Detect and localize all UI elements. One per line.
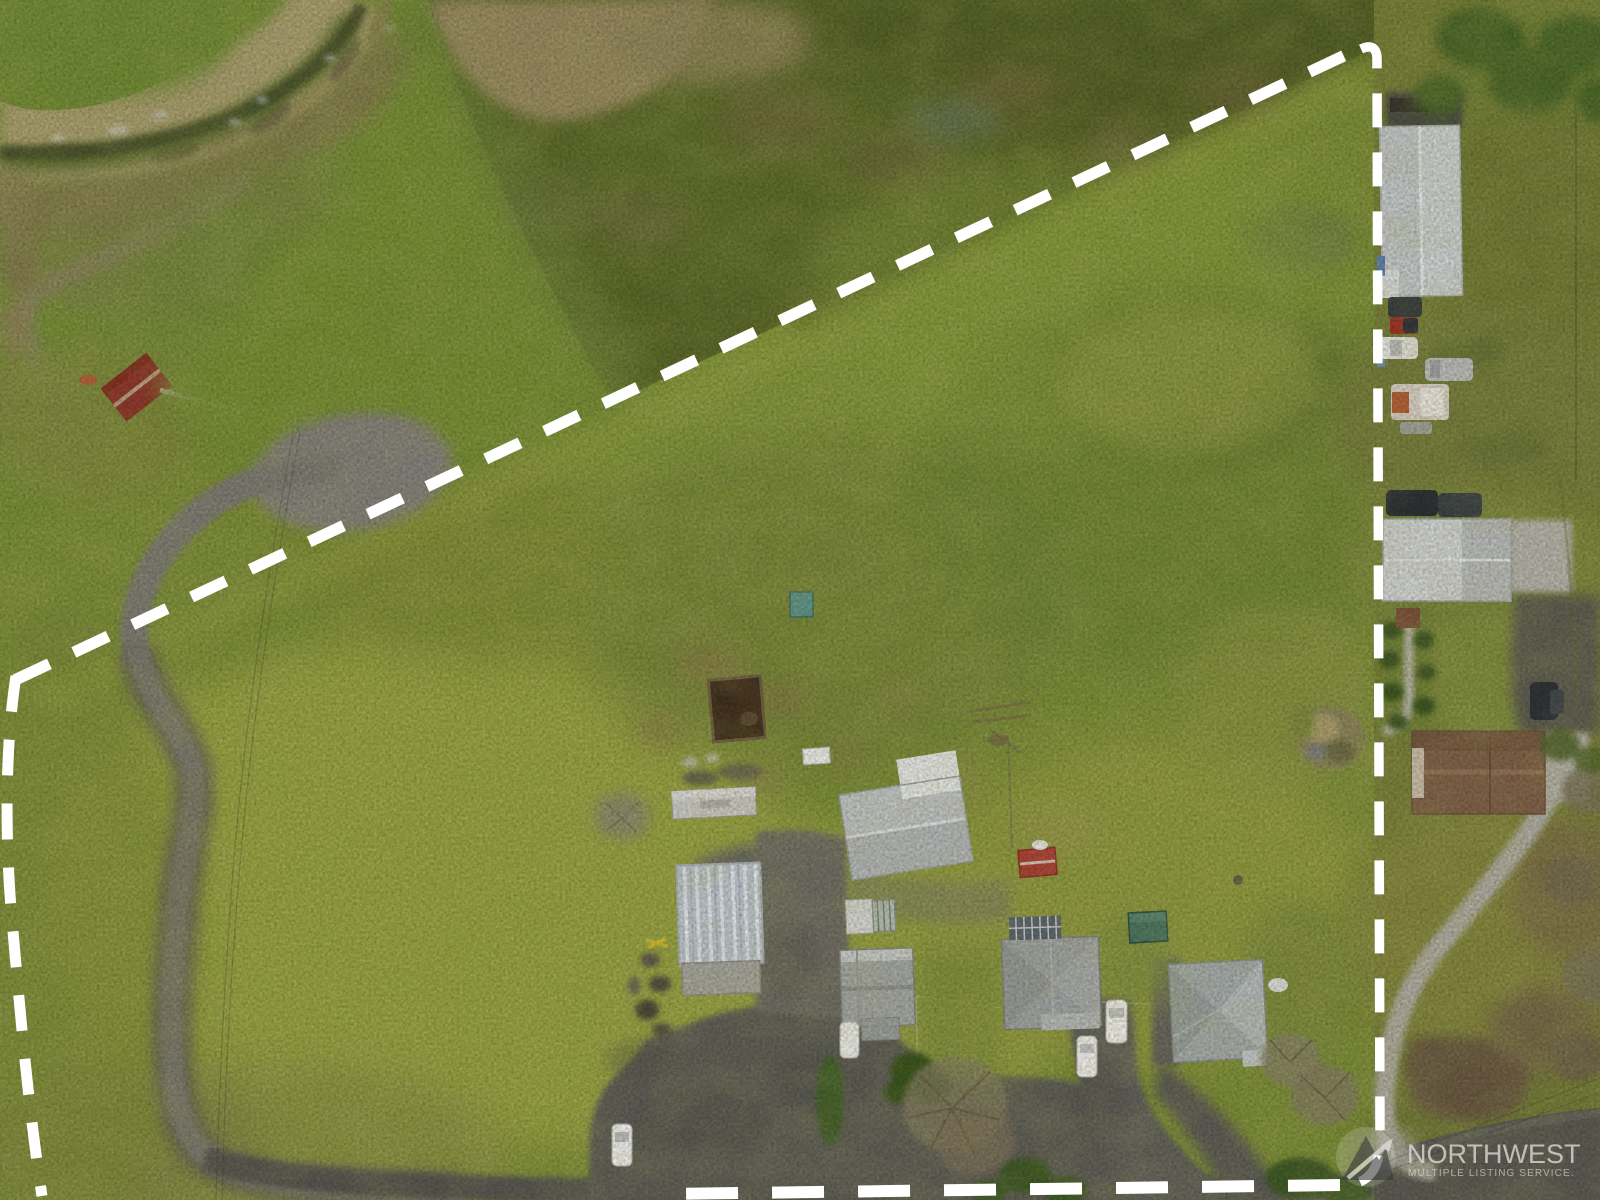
svg-text:NORTHWEST: NORTHWEST bbox=[1407, 1139, 1581, 1169]
svg-text:MULTIPLE LISTING SERVICE.: MULTIPLE LISTING SERVICE. bbox=[1408, 1168, 1575, 1179]
